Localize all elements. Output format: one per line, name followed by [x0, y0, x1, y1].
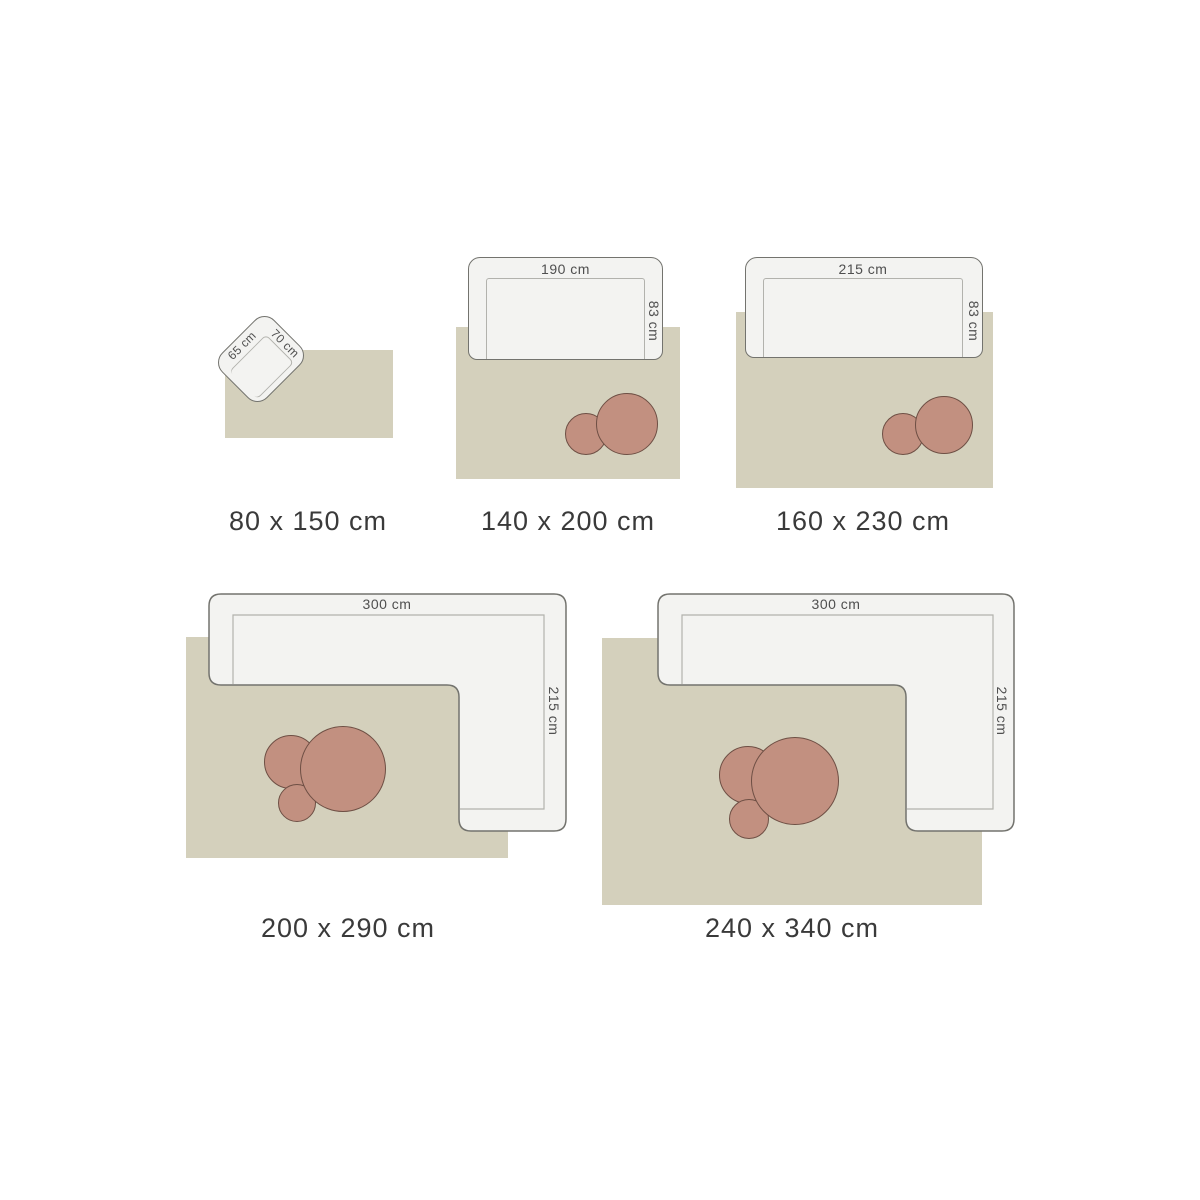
rug-size-label: 80 x 150 cm	[158, 506, 458, 536]
rug-size-label: 140 x 200 cm	[418, 506, 718, 536]
rug-size-label: 200 x 290 cm	[198, 913, 498, 943]
sofa: 215 cm 83 cm	[745, 257, 983, 358]
sofa-depth-label: 215 cm	[547, 681, 561, 741]
sofa-depth-label: 215 cm	[995, 681, 1009, 741]
sofa-width-label: 300 cm	[796, 597, 876, 611]
rug-size-label: 160 x 230 cm	[713, 506, 1013, 536]
rug-size-label: 240 x 340 cm	[642, 913, 942, 943]
coffee-table-large	[596, 393, 658, 455]
coffee-table-large	[915, 396, 973, 454]
sectional-sofa-outline	[658, 594, 1014, 831]
sofa-width-label: 300 cm	[347, 597, 427, 611]
sofa-width-label: 215 cm	[763, 262, 963, 276]
sofa-seat	[486, 278, 645, 359]
sofa-seat	[763, 278, 963, 357]
sectional-sofa	[657, 593, 1015, 832]
sofa-width-label: 190 cm	[486, 262, 645, 276]
sofa-depth-label: 83 cm	[647, 291, 661, 351]
sectional-sofa	[208, 593, 567, 832]
rug-size-guide-diagram: 70 cm 65 cm 80 x 150 cm 190 cm 83 cm 140…	[0, 0, 1200, 1200]
sofa: 190 cm 83 cm	[468, 257, 663, 360]
sectional-sofa-outline	[209, 594, 566, 831]
sofa-depth-label: 83 cm	[967, 291, 981, 351]
